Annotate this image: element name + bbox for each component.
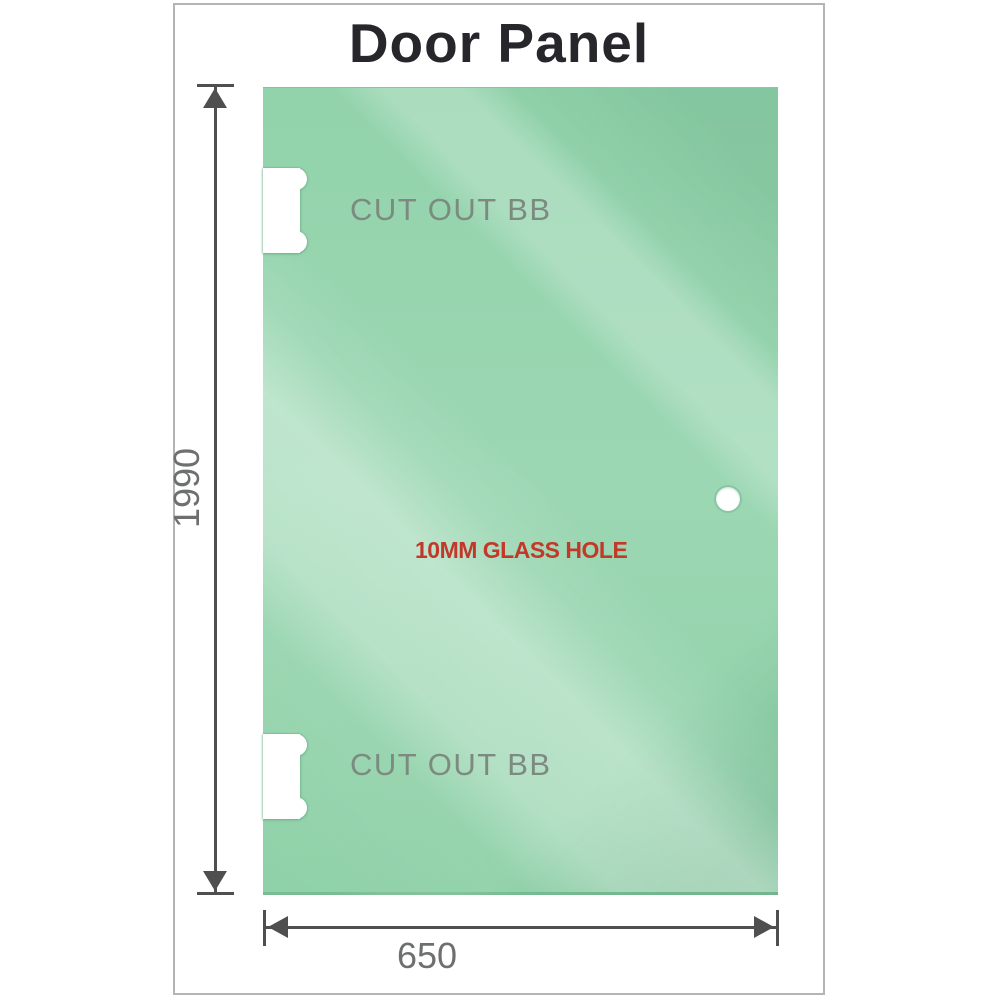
- glass-hole-label: 10MM GLASS HOLE: [415, 537, 615, 564]
- cutout-lobe-bottom: [285, 797, 307, 819]
- dimension-tick-right: [776, 910, 779, 946]
- arrow-up-icon: [203, 88, 227, 108]
- arrow-left-icon: [268, 916, 288, 938]
- cutout-label-bottom: CUT OUT BB: [350, 746, 552, 784]
- width-dimension-value: 650: [377, 936, 477, 976]
- hinge-cutout-bottom: [263, 734, 309, 819]
- width-dimension-line: [265, 926, 777, 929]
- height-dimension-value: 1990: [167, 438, 207, 538]
- cutout-label-top: CUT OUT BB: [350, 191, 552, 229]
- page-title: Door Panel: [173, 16, 825, 71]
- cutout-lobe-top: [285, 168, 307, 190]
- door-panel-diagram: Door Panel 1990 CUT OUT BB CUT OUT BB 10…: [0, 0, 1000, 1000]
- arrow-down-icon: [203, 871, 227, 891]
- arrow-right-icon: [754, 916, 774, 938]
- cutout-lobe-top: [285, 734, 307, 756]
- cutout-lobe-bottom: [285, 231, 307, 253]
- glass-panel: CUT OUT BB CUT OUT BB 10MM GLASS HOLE: [263, 87, 778, 895]
- glass-hole: [716, 487, 740, 511]
- dimension-end-cap-bottom: [197, 892, 234, 895]
- height-dimension-line: [214, 85, 217, 895]
- hinge-cutout-top: [263, 168, 309, 253]
